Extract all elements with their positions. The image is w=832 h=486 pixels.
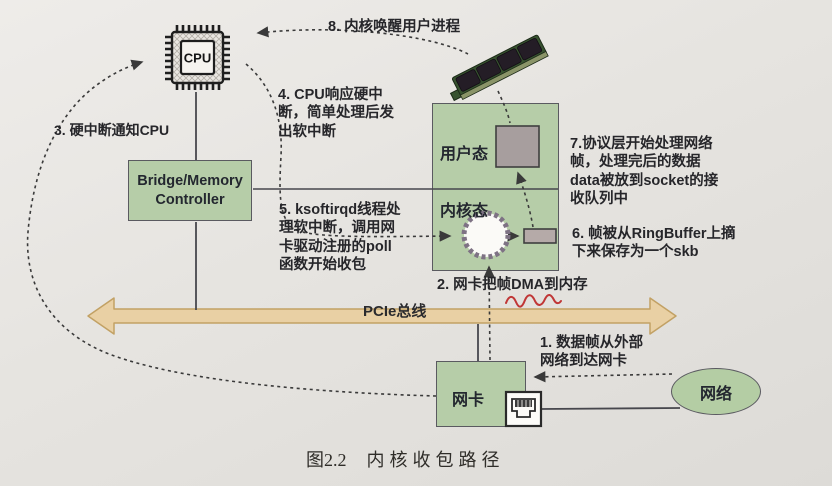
step-6-line-1: 6. 帧被从RingBuffer上摘	[572, 225, 736, 243]
step-3-line-1: 3. 硬中断通知CPU	[54, 122, 169, 140]
step-4-line-2: 断，简单处理后发	[278, 104, 394, 122]
step-5-line-2: 理软中断，调用网	[279, 219, 401, 237]
cpu-icon: CPU	[165, 25, 230, 90]
step-6-line-2: 下来保存为一个skb	[572, 243, 736, 261]
step-1-line-1: 1. 数据帧从外部	[540, 334, 643, 352]
bridge-label: Bridge/Memory Controller	[129, 161, 251, 220]
figure-caption: 图2.2 内核收包路径	[306, 446, 505, 472]
nic-label: 网卡	[452, 386, 484, 410]
user-mode-label: 用户态	[440, 140, 488, 164]
step-5-line-3: 卡驱动注册的poll	[279, 238, 401, 256]
step1-network-to-nic-arrow	[535, 374, 672, 377]
step-8-line-1: 8. 内核唤醒用户进程	[328, 18, 460, 36]
step-1-label: 1. 数据帧从外部 网络到达网卡	[540, 334, 643, 371]
network-oval: 网络	[671, 368, 761, 415]
memory-modes-box	[432, 103, 559, 271]
red-squiggle-underline	[506, 295, 561, 307]
ram-icon	[445, 35, 549, 104]
step-3-label: 3. 硬中断通知CPU	[54, 122, 169, 140]
step-2-line-1: 2. 网卡把帧DMA到内存	[437, 276, 588, 294]
step-5-label: 5. ksoftirqd线程处 理软中断，调用网 卡驱动注册的poll 函数开始…	[279, 201, 401, 275]
pcie-bus-label: PCIe总线	[363, 300, 426, 321]
step-6-label: 6. 帧被从RingBuffer上摘 下来保存为一个skb	[572, 225, 736, 262]
step-4-label: 4. CPU响应硬中 断，简单处理后发 出软中断	[278, 86, 394, 141]
step-7-line-4: 收队列中	[570, 190, 718, 208]
figure-kernel-receive-path: Bridge/Memory Controller 网络	[0, 0, 832, 486]
step-4-line-1: 4. CPU响应硬中	[278, 86, 394, 104]
step-5-line-4: 函数开始收包	[279, 256, 401, 274]
figure-caption-title: 内核收包路径	[367, 446, 505, 472]
step-7-line-2: 帧，处理完后的数据	[570, 153, 718, 171]
step-5-line-1: 5. ksoftirqd线程处	[279, 201, 401, 219]
step-4-line-3: 出软中断	[278, 123, 394, 141]
bridge-label-line1: Bridge/Memory	[137, 172, 243, 191]
step-7-line-1: 7.协议层开始处理网络	[570, 135, 718, 153]
bridge-label-line2: Controller	[155, 191, 224, 210]
network-label: 网络	[700, 380, 732, 404]
step-7-label: 7.协议层开始处理网络 帧，处理完后的数据 data被放到socket的接 收队…	[570, 135, 718, 209]
rj45-network-line	[541, 408, 680, 409]
step-1-line-2: 网络到达网卡	[540, 352, 643, 370]
figure-caption-number: 图2.2	[306, 446, 347, 472]
cpu-label: CPU	[184, 51, 211, 66]
bridge-memory-controller-box: Bridge/Memory Controller	[128, 160, 252, 221]
step-8-label: 8. 内核唤醒用户进程	[328, 18, 460, 36]
step-7-line-3: data被放到socket的接	[570, 172, 718, 190]
step-2-label: 2. 网卡把帧DMA到内存	[437, 276, 588, 294]
kernel-mode-label: 内核态	[440, 197, 488, 221]
